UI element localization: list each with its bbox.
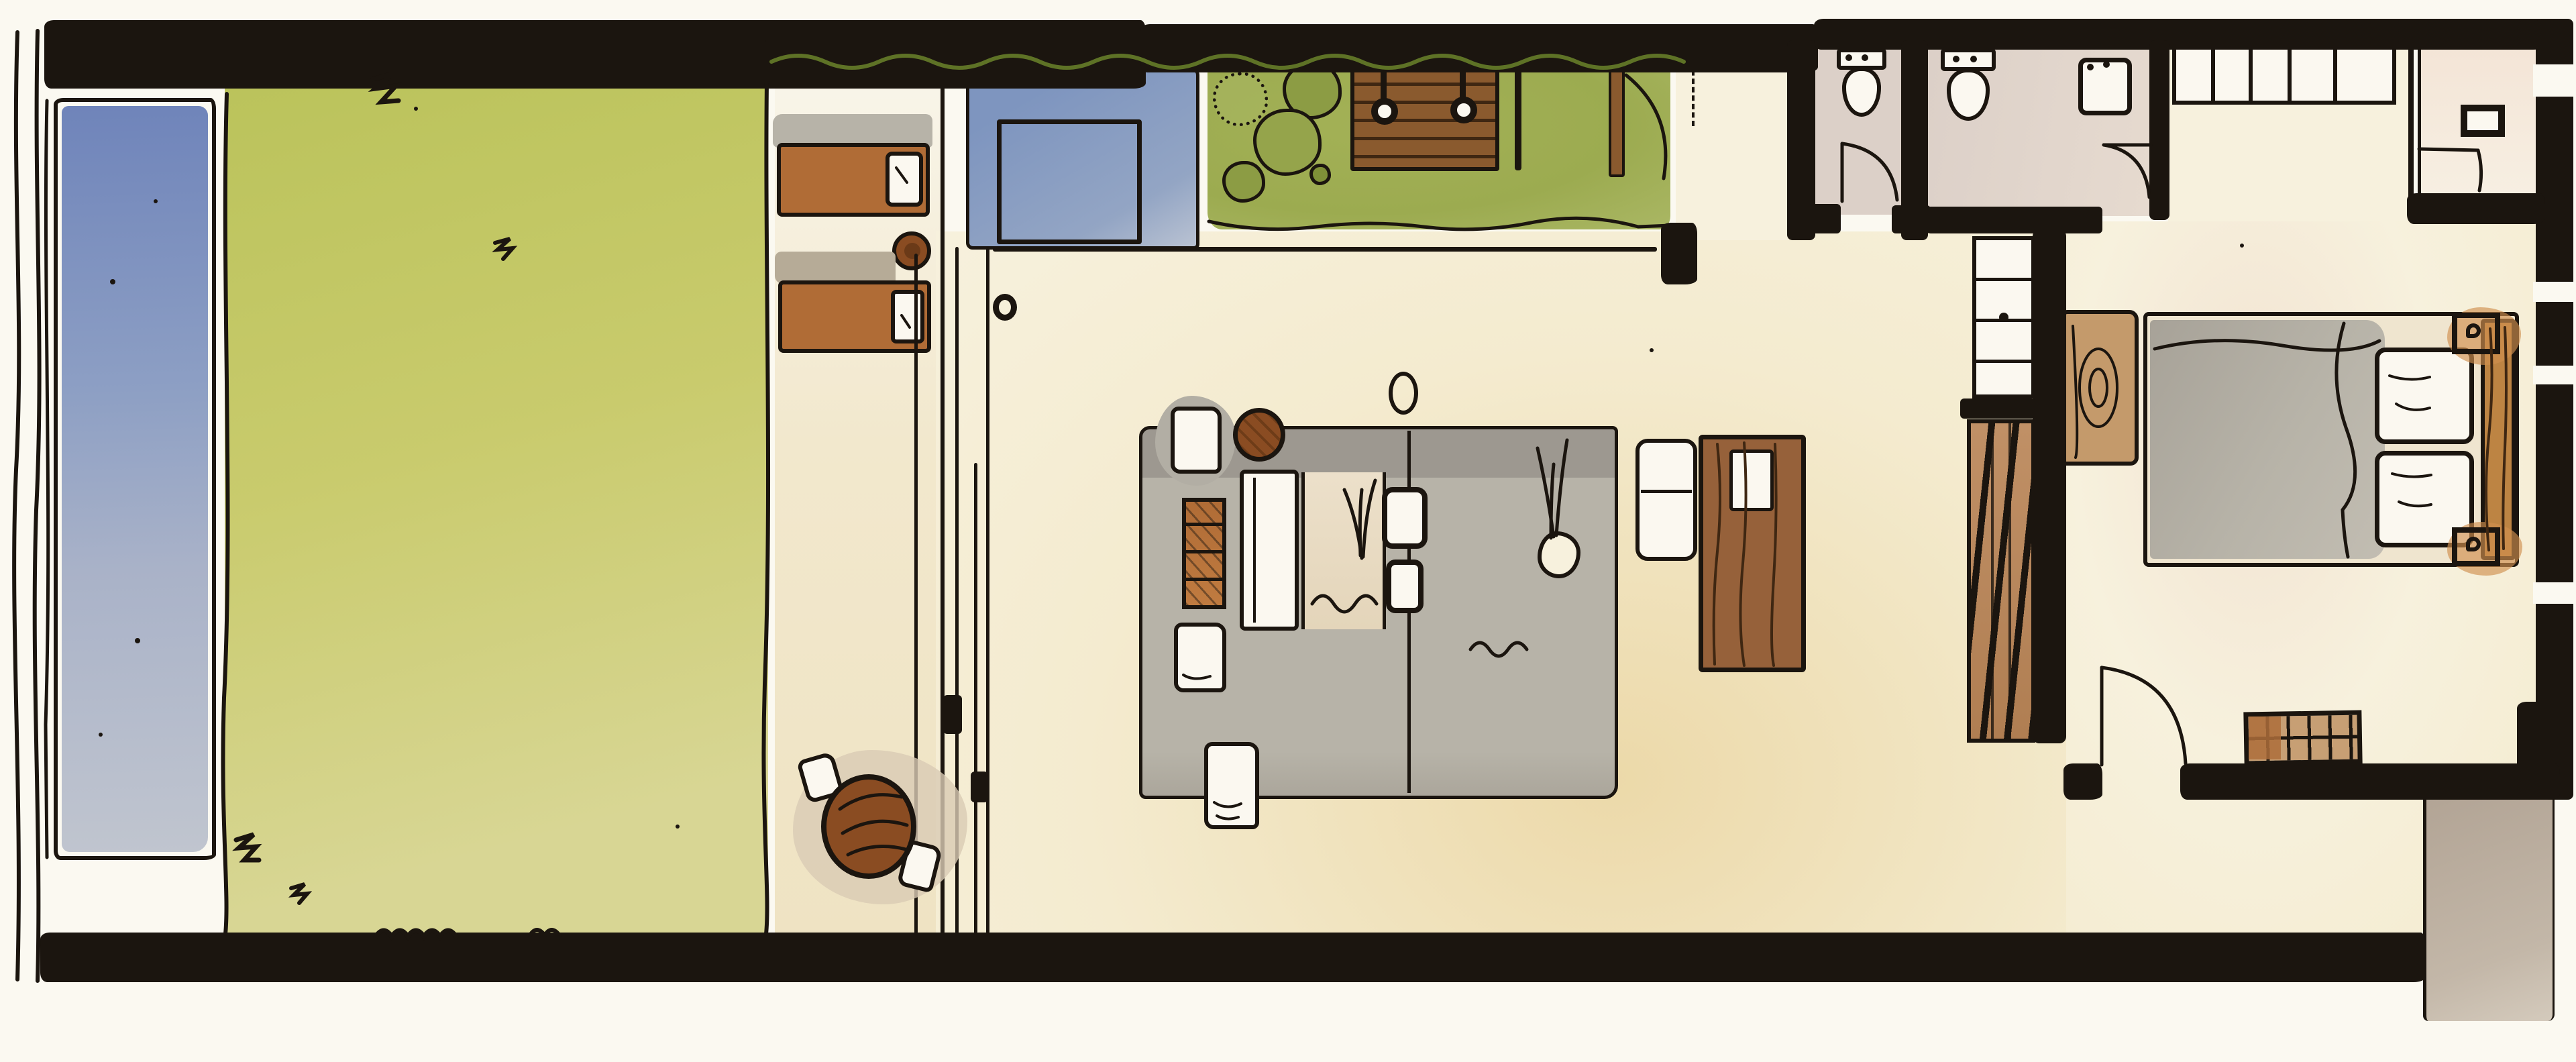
closet-divider <box>2288 46 2292 102</box>
fence-line-icon <box>46 101 48 857</box>
shelf-knob <box>1999 313 2008 322</box>
bath-wall <box>2149 40 2169 220</box>
desk-bench-seam <box>1641 490 1692 493</box>
closet-divider <box>2333 46 2337 102</box>
coffee-platform <box>1301 472 1386 629</box>
bedroom-south-wall-stub <box>2063 763 2102 800</box>
floor-plan-canvas <box>0 0 2576 1062</box>
door-handle <box>943 695 962 734</box>
garden-post <box>1515 66 1521 170</box>
lounge-chair <box>1386 560 1424 613</box>
wall-niche-square <box>2461 105 2505 137</box>
lamp-spiral-icon <box>2466 323 2481 338</box>
desk-tray <box>1729 449 1774 511</box>
lounger-1-pillow <box>885 152 923 207</box>
bed-pillow <box>2375 348 2474 444</box>
sofa-backrest-line <box>1253 478 1256 623</box>
garden-bench <box>1609 70 1625 177</box>
lawn <box>225 39 768 935</box>
fence-line-icon <box>14 32 19 979</box>
wc-south-wall <box>1892 205 1931 233</box>
dining-table <box>821 774 916 879</box>
armchair <box>1204 742 1259 829</box>
bed-duvet <box>2150 320 2385 559</box>
daybed-mattress-frame <box>997 119 1142 244</box>
lounger-2-pillow <box>891 290 924 343</box>
sliding-door-track <box>986 247 989 934</box>
north-beam-line <box>993 247 1657 252</box>
storage-ottoman <box>1182 498 1226 609</box>
dressing-south-wall <box>2407 193 2545 224</box>
door-handle <box>971 772 988 802</box>
column-pier <box>1661 223 1697 284</box>
lounger-side-table-center <box>904 243 920 259</box>
east-wall <box>2536 19 2573 800</box>
bottom-wall <box>40 933 2426 982</box>
lounge-chair <box>1382 487 1428 549</box>
top-wall <box>44 20 1146 89</box>
wood-slab-bench <box>2061 310 2139 466</box>
toilet-tank <box>1941 48 1996 71</box>
bedroom-south-wall <box>2180 763 2560 800</box>
hall-bedroom-wall <box>2033 229 2066 743</box>
washbasin <box>2078 58 2132 115</box>
sliding-door-track <box>974 463 977 934</box>
shower-head-icon <box>1371 98 1398 125</box>
round-side-table <box>1233 408 1285 462</box>
garden-bush-2 <box>1253 109 1322 176</box>
garden-bush-4 <box>1309 164 1331 185</box>
closet-divider <box>2249 46 2253 102</box>
entry-porch <box>2423 797 2555 1021</box>
dressing-wall <box>2418 50 2421 197</box>
shower-head-icon <box>1450 97 1477 123</box>
closet-divider <box>2211 46 2215 102</box>
top-wall <box>1140 24 1818 72</box>
dressing-wall <box>2408 50 2414 197</box>
armchair <box>1174 623 1226 692</box>
wc-south-wall <box>1787 204 1841 233</box>
bath-south-wall <box>1927 207 2102 233</box>
foot-bench-dark-cell <box>2249 716 2281 759</box>
east-wall-window-gap <box>2533 282 2576 302</box>
lamp-spiral-icon <box>2466 537 2481 551</box>
pool-water <box>62 106 208 852</box>
east-wall-window-gap <box>2533 64 2576 97</box>
east-wall-window-gap <box>2533 582 2576 604</box>
garden-bush-dotted <box>1213 72 1268 126</box>
floor-circle-mark <box>1389 372 1418 415</box>
floor-drain-ring <box>993 294 1017 321</box>
slatted-shelf-unit <box>1967 419 2035 743</box>
desk-bench <box>1635 439 1697 561</box>
garden-bush-3 <box>1222 161 1265 203</box>
sofa <box>1240 470 1299 631</box>
fence-line-icon <box>35 31 40 981</box>
lounger-2-back-cushion <box>775 252 896 284</box>
east-wall-window-gap <box>2533 366 2576 384</box>
armchair <box>1171 407 1222 474</box>
niche-bottom-wall <box>1960 399 2035 419</box>
wardrobe-closet <box>2172 43 2396 105</box>
